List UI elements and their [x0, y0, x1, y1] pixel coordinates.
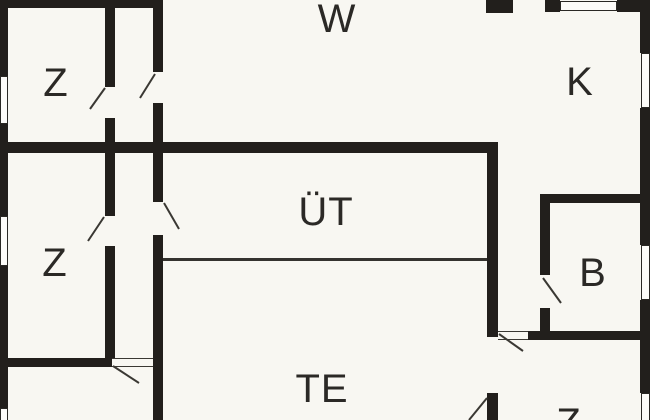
wall-hall-right-c: [153, 153, 163, 202]
wall-bottom-left-horizontal: [0, 358, 112, 367]
wall-te-right-b: [487, 393, 498, 420]
window-left-3: [0, 408, 8, 420]
window-left-1: [0, 76, 8, 124]
door-swing-z-mid-left-door: [88, 217, 104, 241]
wall-k-top-a: [545, 0, 560, 12]
threshold-z-bottom-right-entry: [498, 331, 528, 340]
door-swing-te-door: [469, 398, 487, 420]
room-label-z-bottom-right: Z: [556, 403, 581, 420]
wall-hall-right-a: [153, 8, 163, 72]
wall-hall-left-c: [105, 153, 115, 216]
window-right-2: [641, 245, 650, 300]
door-swing-hall-bottom-door: [113, 366, 139, 383]
wall-te-right-a: [487, 153, 498, 337]
wall-b-top: [540, 194, 650, 203]
wall-right-exterior-a: [640, 10, 650, 53]
wall-hall-right-d: [153, 235, 163, 420]
room-label-z-top-left: Z: [43, 63, 68, 103]
floor-plan: WZKZÜTBTEZ: [0, 0, 650, 420]
room-label-k: K: [566, 62, 594, 102]
wall-top-stub: [486, 0, 513, 13]
wall-b-left-a: [540, 203, 550, 275]
wall-left-exterior-c: [0, 266, 8, 408]
window-right-3: [641, 393, 650, 420]
wall-hall-right-b: [153, 103, 163, 142]
wall-right-exterior-d: [640, 300, 650, 331]
wall-hall-left-a: [105, 8, 115, 87]
wall-right-exterior-c: [640, 203, 650, 245]
room-label-b: B: [579, 253, 607, 293]
divider-uet-te-divider: [163, 258, 487, 261]
wall-right-exterior-e: [640, 340, 650, 393]
wall-b-bottom: [528, 331, 650, 340]
threshold-hall-bottom-door: [112, 358, 153, 367]
window-left-2: [0, 216, 8, 266]
wall-left-exterior-b: [0, 124, 8, 216]
wall-hall-left-b: [105, 118, 115, 142]
room-label-z-mid-left: Z: [42, 243, 67, 283]
wall-mid-horizontal: [0, 142, 498, 153]
wall-right-exterior-b: [640, 108, 650, 194]
wall-top-left: [0, 0, 163, 8]
door-swing-b-door: [543, 278, 561, 303]
wall-b-left-b: [540, 308, 550, 331]
door-swing-z-top-left-door: [90, 88, 105, 109]
door-swing-hall-top-door: [140, 74, 155, 98]
room-label-uet: ÜT: [298, 192, 353, 232]
door-swing-uet-door: [164, 203, 179, 229]
window-right-1: [641, 53, 650, 108]
room-label-w: W: [318, 0, 357, 39]
wall-left-exterior-a: [0, 0, 8, 76]
window-top-k: [560, 1, 617, 11]
room-label-te: TE: [295, 369, 348, 409]
wall-hall-left-d: [105, 246, 115, 358]
